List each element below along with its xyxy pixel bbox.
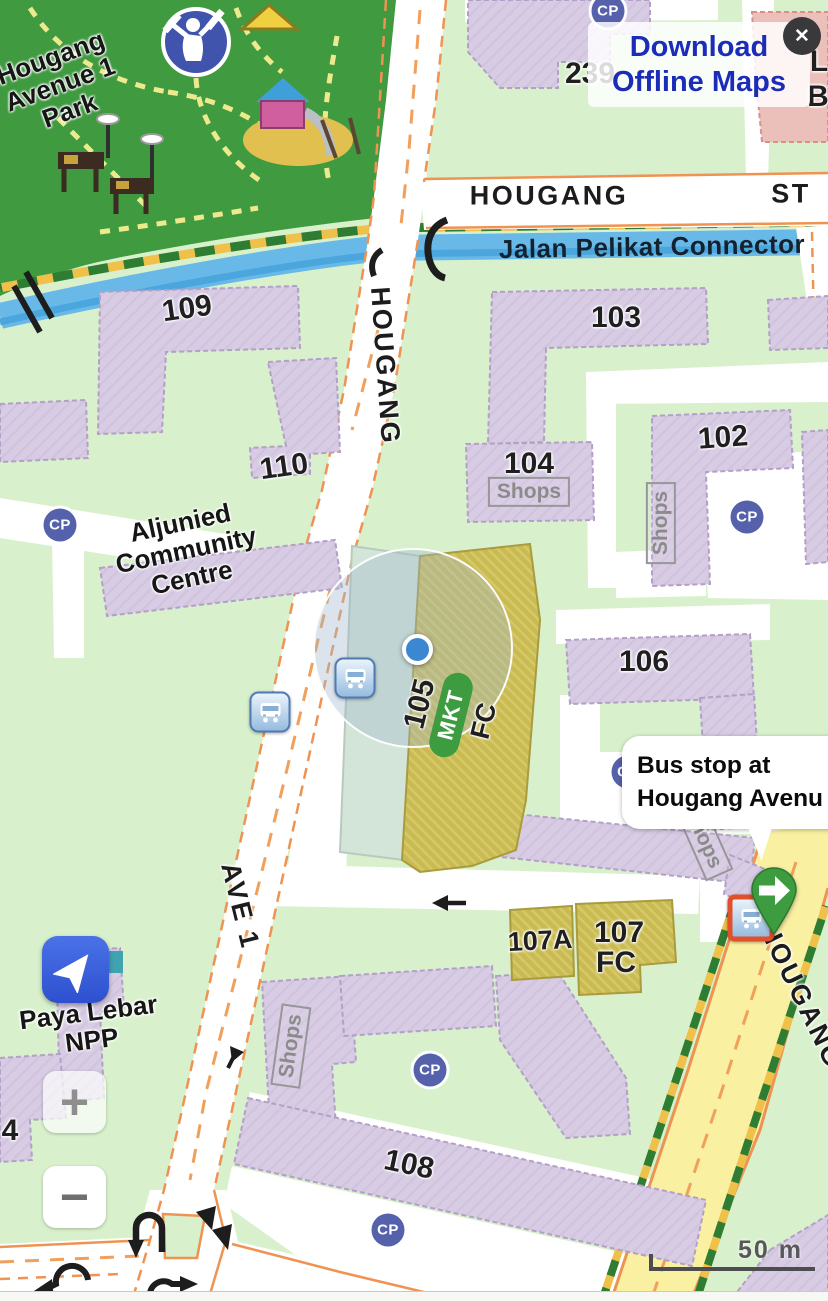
building-label: 102 xyxy=(697,419,749,456)
carpark-icon: CP xyxy=(414,1054,447,1087)
building-label: 109 xyxy=(160,289,214,330)
carpark-icon: CP xyxy=(44,509,77,542)
street-label: ST xyxy=(771,179,811,210)
bus-stop-icon[interactable] xyxy=(335,658,376,699)
bus-stop-pin[interactable] xyxy=(746,864,802,943)
bus-stop-tooltip[interactable]: Bus stop at Hougang Avenu xyxy=(622,736,828,829)
waterway-label: Jalan Pelikat Connector xyxy=(499,229,806,265)
pin-arrow-icon xyxy=(746,864,802,938)
navigation-arrow-icon xyxy=(53,947,99,993)
zoom-in-button[interactable]: + xyxy=(43,1071,106,1133)
banner-line1: Download xyxy=(630,30,769,64)
bus-stop-icon[interactable] xyxy=(250,692,291,733)
zoom-out-button[interactable]: − xyxy=(43,1166,106,1228)
traffic-island xyxy=(163,1214,205,1258)
minus-icon: − xyxy=(60,1168,89,1226)
tooltip-line2: Hougang Avenu xyxy=(637,782,828,815)
map-viewport[interactable]: HOUGANGSTHOUGANGAVE 1HOUGANG 23910910311… xyxy=(0,0,828,1301)
building-label: FC xyxy=(596,946,636,980)
current-location-button[interactable] xyxy=(42,936,109,1003)
street-label: HOUGANG xyxy=(470,181,629,212)
fitness-corner-icon xyxy=(163,9,229,75)
bus-glyph xyxy=(257,699,283,725)
tooltip-tail xyxy=(747,820,781,862)
building-label: 107 xyxy=(594,916,644,950)
download-offline-maps-banner[interactable]: Download Offline Maps xyxy=(588,22,810,107)
plus-icon: + xyxy=(60,1073,89,1131)
building-label: 107A xyxy=(507,924,573,958)
carpark-icon: CP xyxy=(731,501,764,534)
building-label: 103 xyxy=(591,301,641,335)
tooltip-line1: Bus stop at xyxy=(637,749,828,782)
carpark-icon: CP xyxy=(372,1214,405,1247)
bus-glyph xyxy=(342,665,368,691)
banner-line2: Offline Maps xyxy=(612,65,786,99)
building-label: 4 xyxy=(2,1114,19,1148)
shops-label: Shops xyxy=(646,482,676,564)
bottom-bar xyxy=(0,1291,828,1301)
building-label: B xyxy=(807,80,828,114)
close-icon: ✕ xyxy=(794,25,810,48)
close-button[interactable]: ✕ xyxy=(783,17,821,55)
scale-bar xyxy=(649,1254,815,1271)
shops-label: Shops xyxy=(488,477,570,507)
building-label: 110 xyxy=(258,447,311,487)
building-label: 106 xyxy=(619,645,669,679)
user-location-dot xyxy=(402,634,433,665)
